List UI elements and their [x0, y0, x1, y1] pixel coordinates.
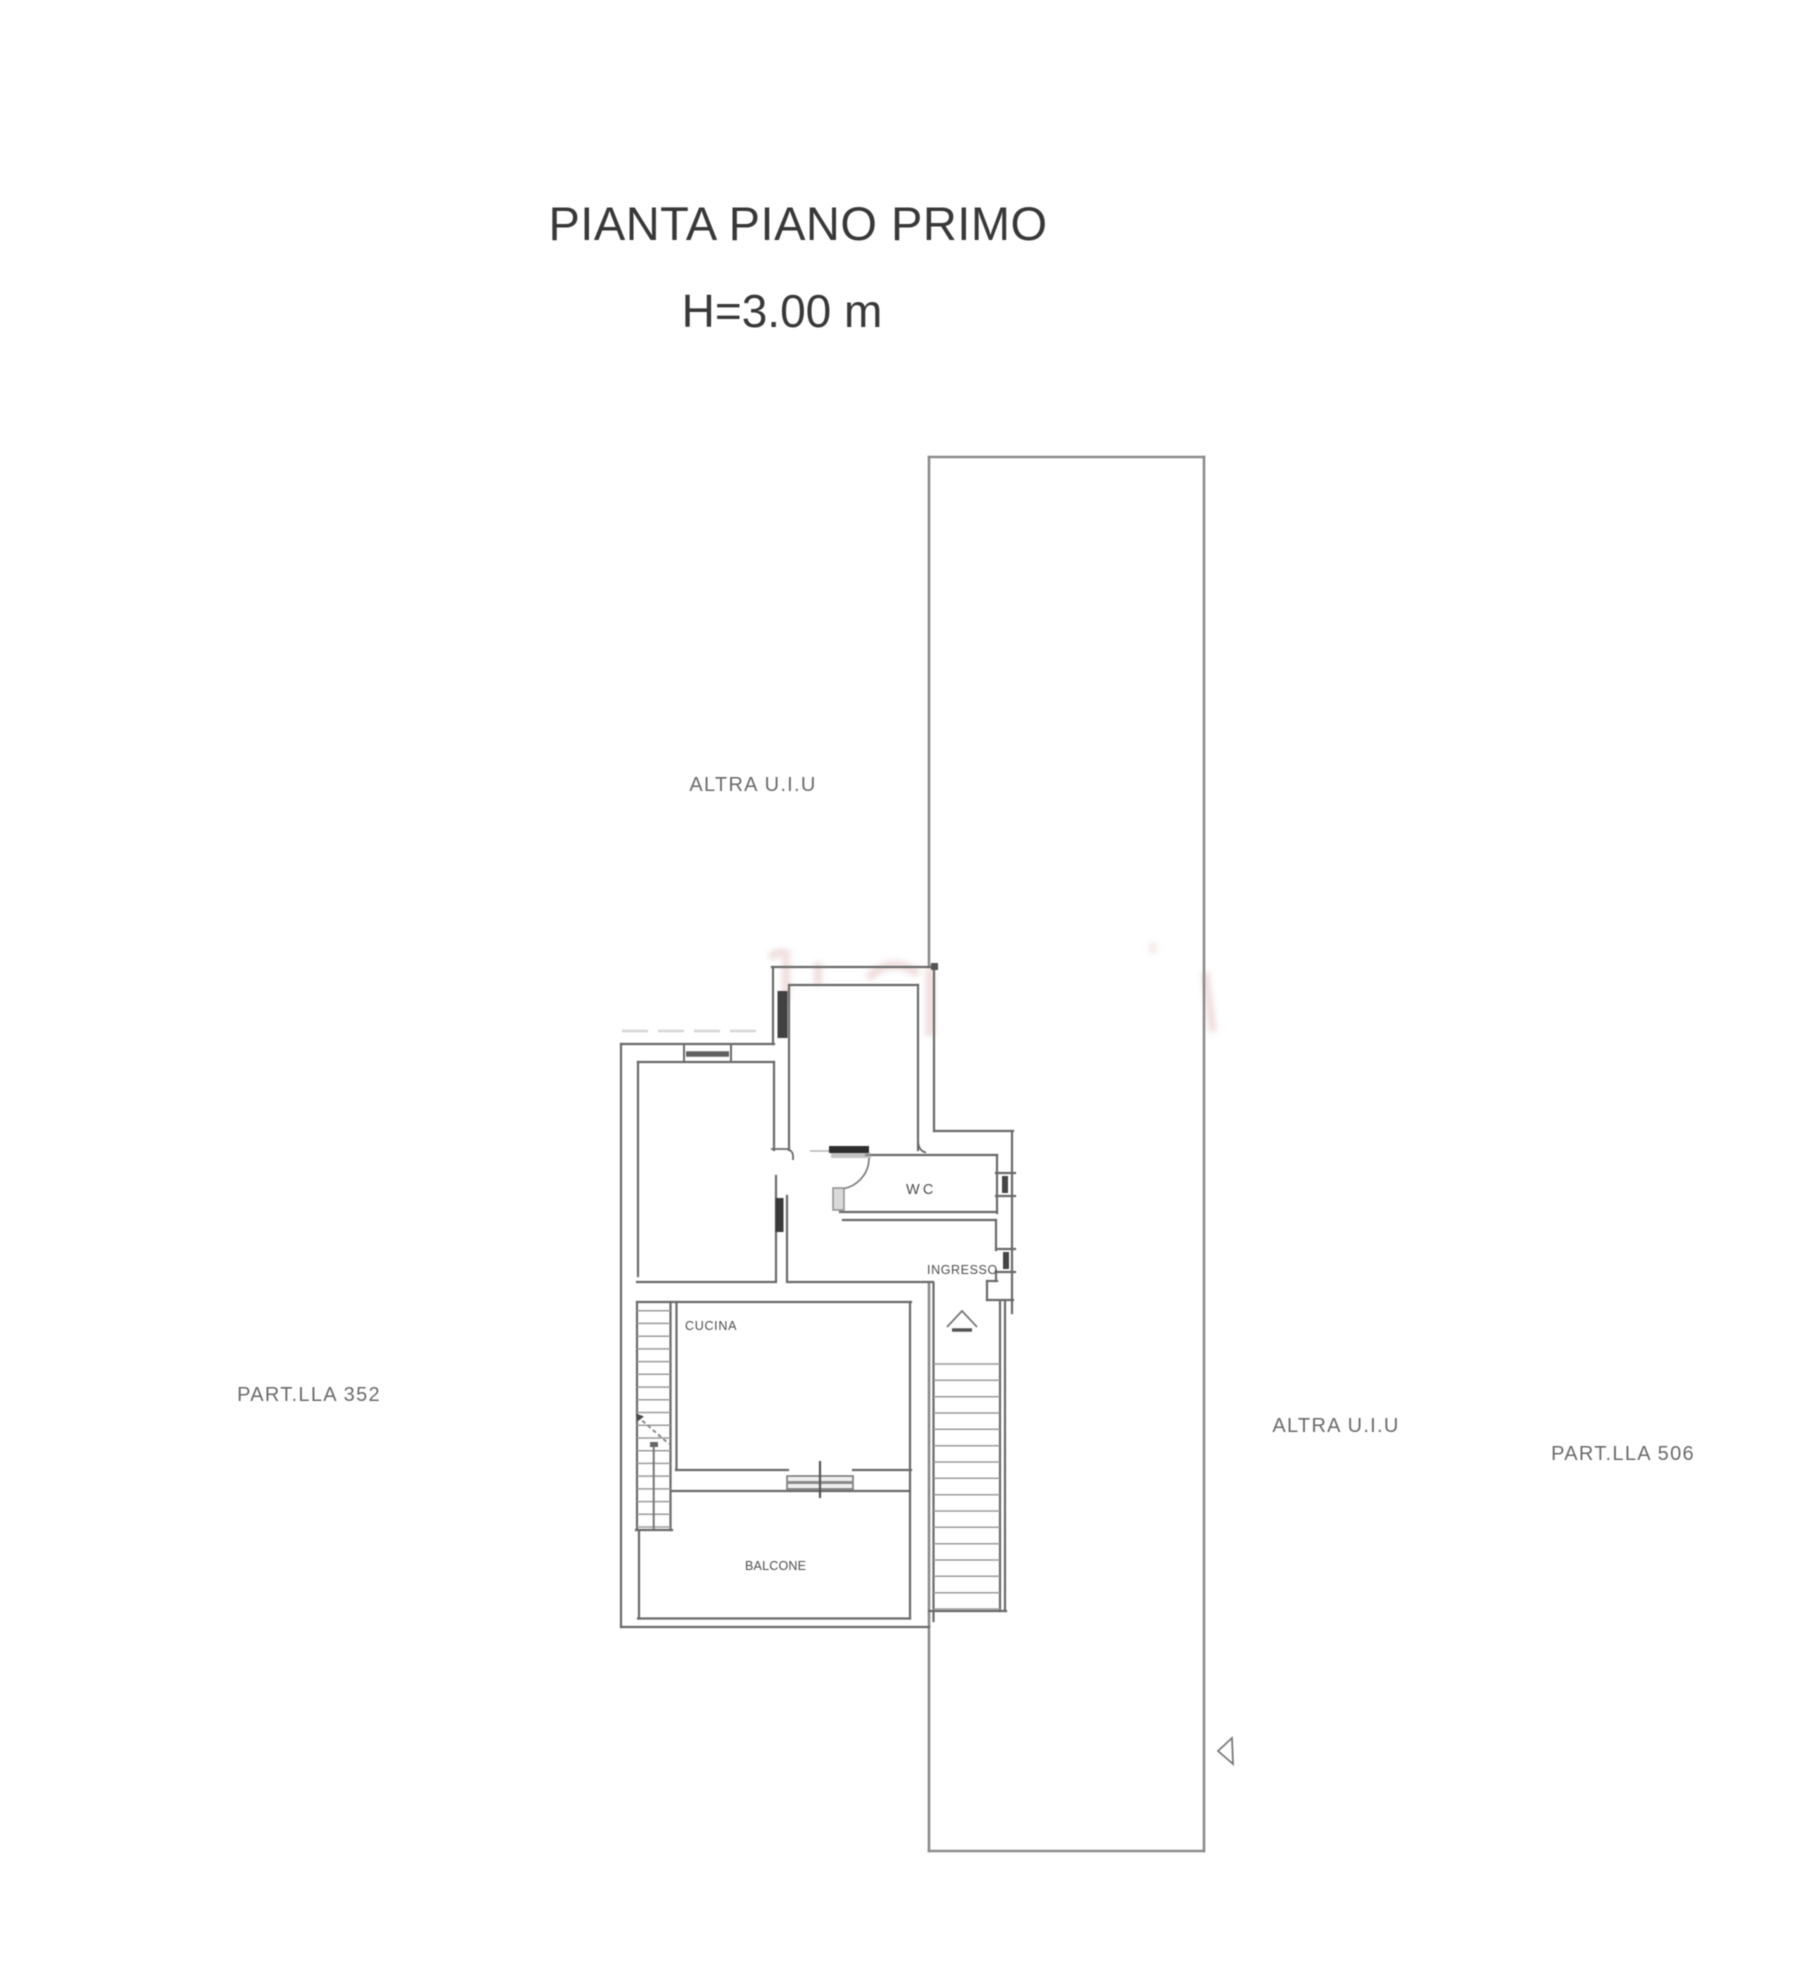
svg-text:ALTRA U.I.U: ALTRA U.I.U: [1272, 1415, 1399, 1437]
svg-text:INGRESSO: INGRESSO: [927, 1263, 998, 1277]
svg-text:PART.LLA 506: PART.LLA 506: [1551, 1443, 1695, 1465]
svg-text:PIANTA PIANO PRIMO: PIANTA PIANO PRIMO: [548, 197, 1047, 250]
svg-text:CUCINA: CUCINA: [685, 1319, 737, 1333]
svg-text:PART.LLA 352: PART.LLA 352: [237, 1384, 381, 1406]
svg-text:BALCONE: BALCONE: [745, 1559, 806, 1573]
svg-text:ALTRA U.I.U: ALTRA U.I.U: [689, 774, 816, 796]
svg-text:H=3.00 m: H=3.00 m: [682, 285, 883, 337]
svg-text:WC: WC: [906, 1182, 937, 1198]
